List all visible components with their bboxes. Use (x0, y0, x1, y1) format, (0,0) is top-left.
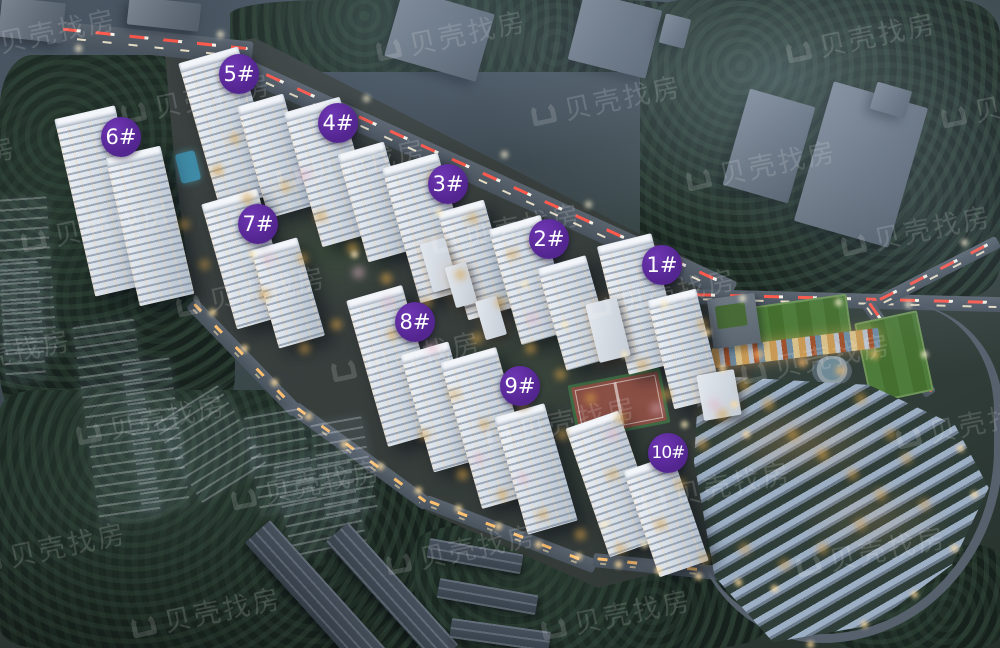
building-9-badge[interactable]: 9# (500, 366, 540, 406)
beike-logo-icon (529, 100, 557, 127)
aerial-render: 贝壳找房 贝壳找房 贝壳找房 贝壳找房 贝壳找房 贝壳找房 贝壳找房 贝壳找房 … (0, 0, 1000, 648)
warehouse-building (127, 0, 202, 32)
building-8-badge[interactable]: 8# (395, 302, 435, 342)
building-5-badge[interactable]: 5# (219, 54, 259, 94)
building-7-badge[interactable]: 7# (238, 204, 278, 244)
kindergarten-building (696, 369, 741, 421)
circular-plaza (812, 356, 852, 386)
school-building (707, 293, 761, 349)
building-6-badge[interactable]: 6# (101, 117, 141, 157)
building-3-badge[interactable]: 3# (428, 164, 468, 204)
warehouse-building (0, 0, 66, 43)
building-2-badge[interactable]: 2# (529, 219, 569, 259)
building-4-badge[interactable]: 4# (318, 103, 358, 143)
building-10-badge[interactable]: 10# (648, 433, 688, 473)
building-1-badge[interactable]: 1# (642, 245, 682, 285)
